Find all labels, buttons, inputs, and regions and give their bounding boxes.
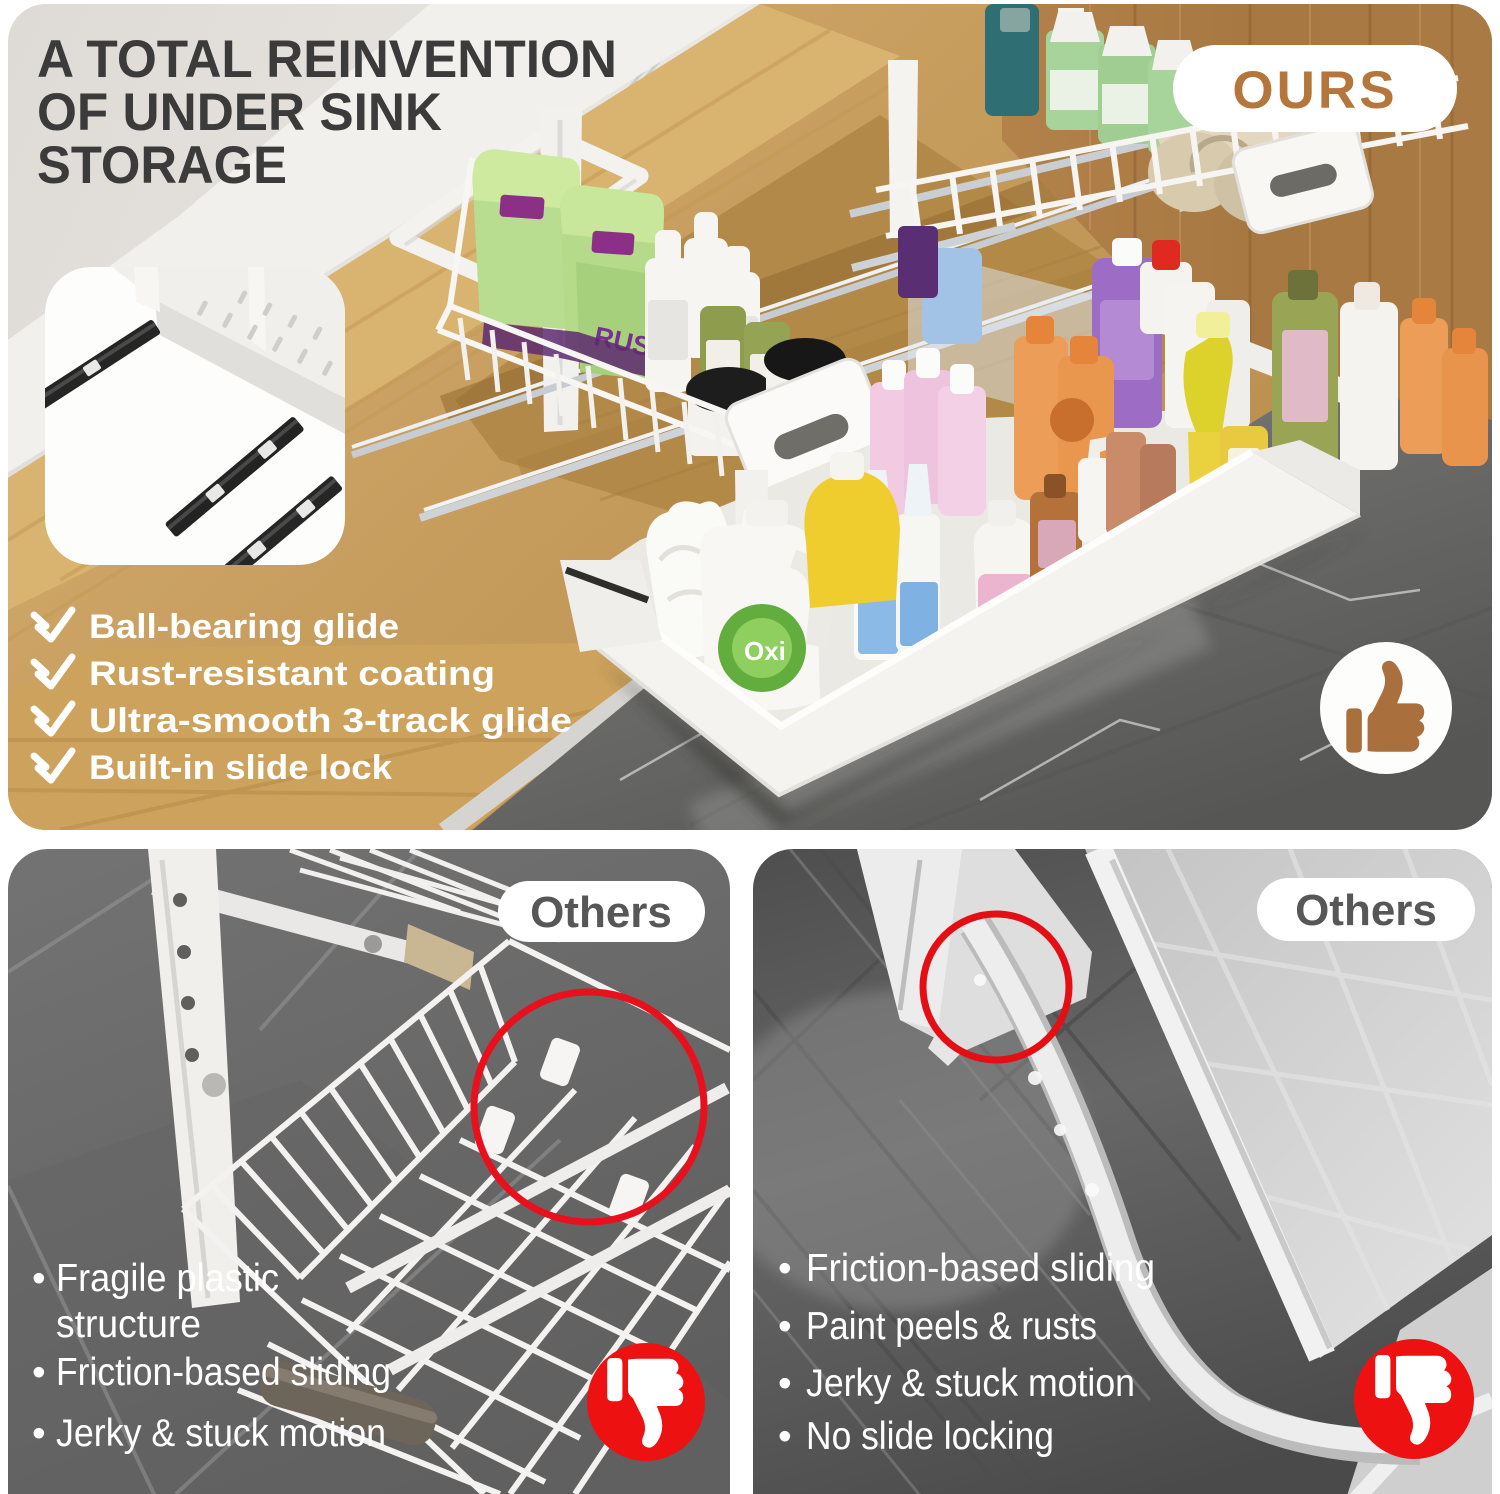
svg-text:Ball-bearing glide: Ball-bearing glide — [89, 608, 399, 646]
svg-text:•: • — [32, 1351, 46, 1394]
svg-text:Fragile plastic: Fragile plastic — [56, 1257, 279, 1300]
svg-text:OF UNDER SINK: OF UNDER SINK — [37, 83, 442, 142]
svg-text:Rust-resistant coating: Rust-resistant coating — [89, 655, 495, 693]
svg-text:Others: Others — [530, 888, 672, 937]
svg-text:•: • — [32, 1412, 46, 1455]
svg-text:•: • — [778, 1305, 792, 1348]
svg-text:Friction-based sliding: Friction-based sliding — [806, 1247, 1155, 1290]
svg-text:Paint peels & rusts: Paint peels & rusts — [806, 1305, 1097, 1348]
svg-text:Built-in slide lock: Built-in slide lock — [89, 749, 392, 787]
svg-text:OURS: OURS — [1232, 61, 1397, 120]
svg-text:•: • — [778, 1415, 792, 1458]
svg-text:Friction-based sliding: Friction-based sliding — [56, 1351, 391, 1394]
svg-text:No slide locking: No slide locking — [806, 1415, 1054, 1458]
svg-text:A TOTAL REINVENTION: A TOTAL REINVENTION — [37, 30, 617, 89]
svg-text:Ultra-smooth 3-track glide: Ultra-smooth 3-track glide — [89, 702, 572, 740]
svg-text:Jerky & stuck motion: Jerky & stuck motion — [56, 1412, 386, 1455]
svg-text:•: • — [778, 1247, 792, 1290]
svg-text:•: • — [32, 1257, 46, 1300]
svg-text:STORAGE: STORAGE — [37, 136, 287, 195]
svg-text:structure: structure — [56, 1303, 201, 1346]
svg-text:Oxi: Oxi — [744, 636, 786, 666]
svg-text:Others: Others — [1295, 886, 1437, 935]
svg-text:Jerky & stuck motion: Jerky & stuck motion — [806, 1362, 1135, 1405]
svg-text:•: • — [778, 1362, 792, 1405]
